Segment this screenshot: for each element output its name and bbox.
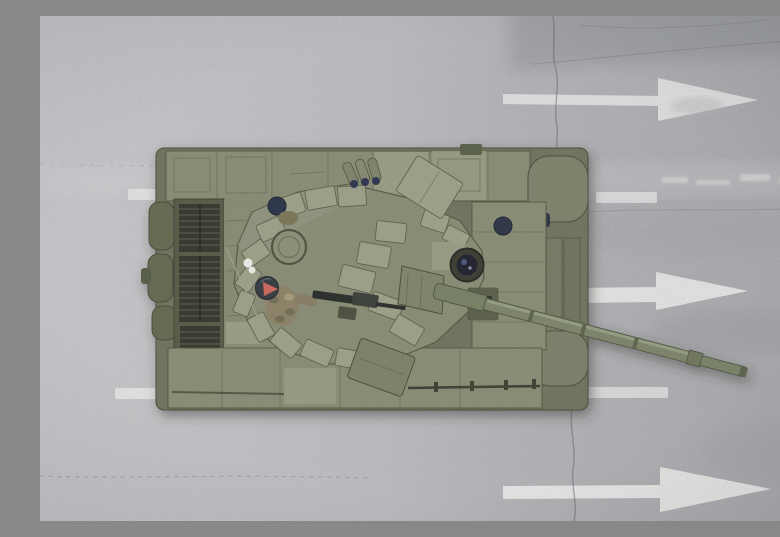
photo-tank-on-road: Aerial top-down view of a main battle ta… bbox=[40, 16, 780, 521]
vignette bbox=[40, 16, 780, 521]
